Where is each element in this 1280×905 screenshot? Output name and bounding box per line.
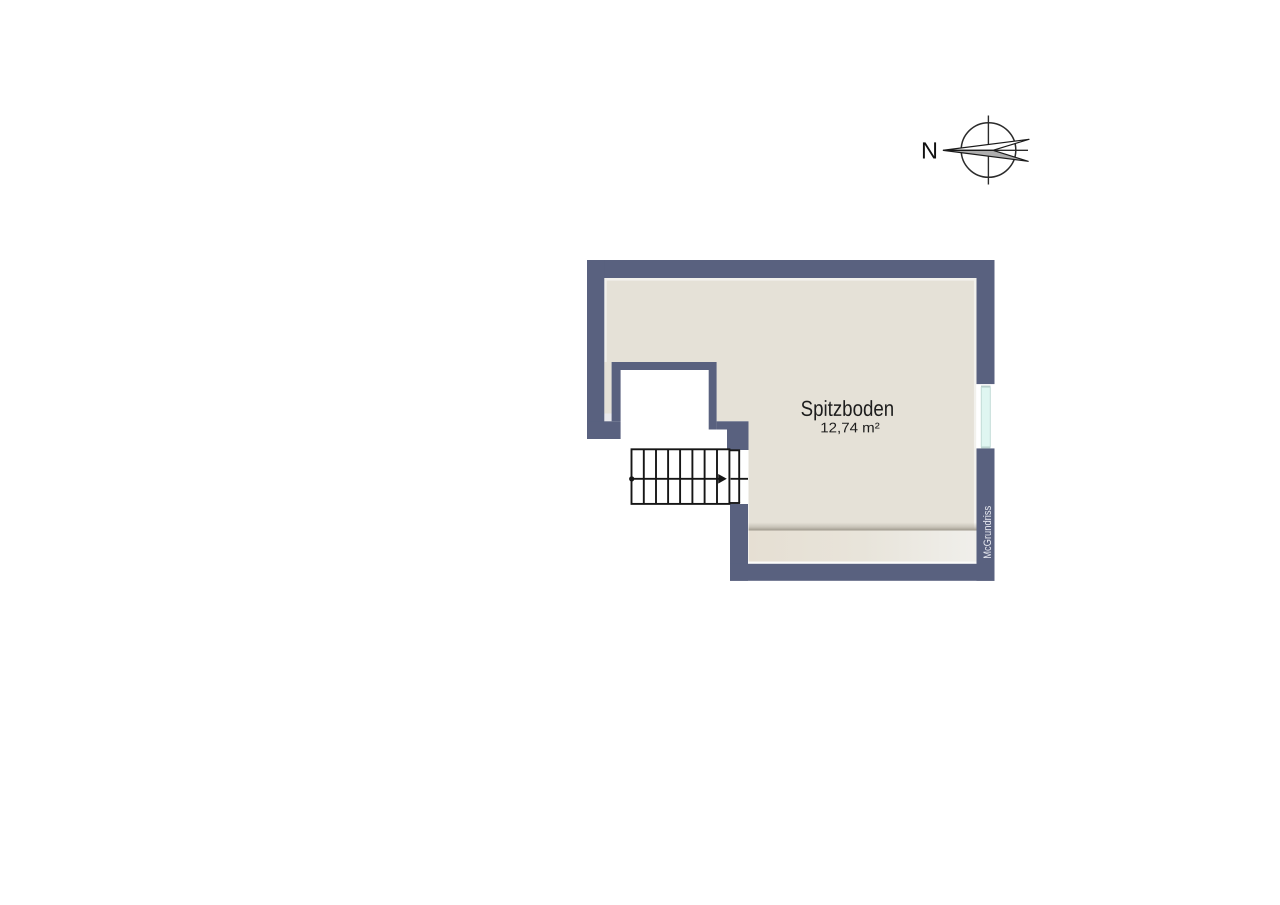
svg-text:N: N xyxy=(921,137,938,163)
svg-text:McGrundriss: McGrundriss xyxy=(982,505,994,558)
svg-text:Spitzboden: Spitzboden xyxy=(801,396,895,421)
svg-text:12,74 m²: 12,74 m² xyxy=(820,419,880,435)
